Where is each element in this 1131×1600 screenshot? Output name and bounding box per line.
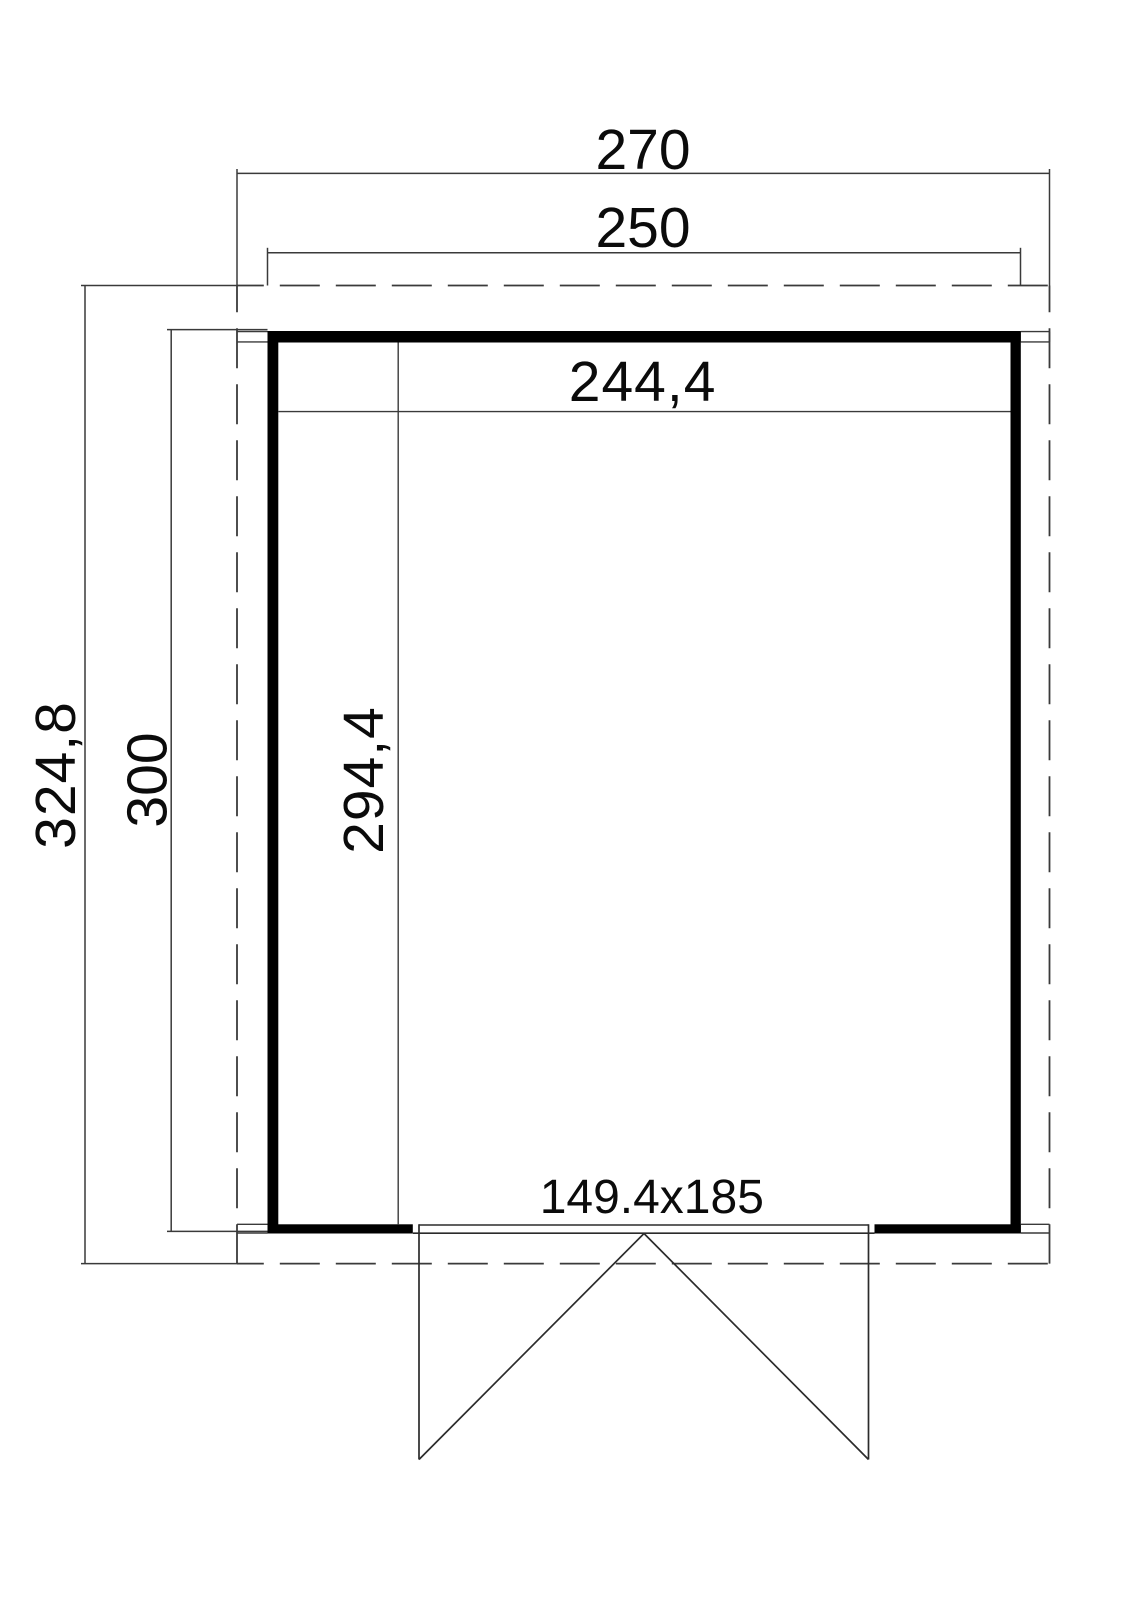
svg-text:244,4: 244,4 [569,350,717,414]
svg-text:300: 300 [116,732,180,827]
svg-text:270: 270 [595,118,690,182]
svg-text:324,8: 324,8 [24,701,88,849]
svg-text:250: 250 [595,196,690,260]
svg-text:149.4x185: 149.4x185 [540,1171,764,1224]
svg-text:294,4: 294,4 [332,706,396,854]
